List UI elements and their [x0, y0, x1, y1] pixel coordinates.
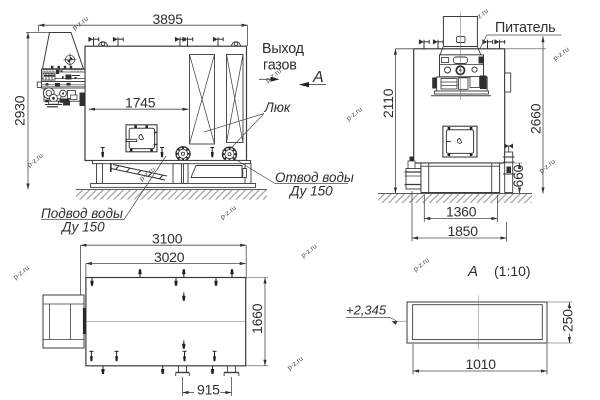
svg-text:2660: 2660 [528, 103, 544, 134]
svg-text:Ду 150: Ду 150 [288, 184, 333, 199]
svg-text:Питатель: Питатель [495, 20, 555, 36]
svg-text:3020: 3020 [154, 249, 185, 265]
svg-text:Выход: Выход [262, 41, 305, 57]
svg-text:1850: 1850 [448, 223, 479, 239]
svg-text:+2,345: +2,345 [346, 303, 387, 318]
svg-text:1360: 1360 [446, 204, 477, 220]
svg-text:1660: 1660 [249, 303, 265, 334]
svg-text:3895: 3895 [153, 11, 184, 27]
svg-text:А: А [467, 263, 478, 280]
svg-text:2930: 2930 [12, 95, 28, 126]
svg-text:915: 915 [197, 381, 220, 397]
svg-text:250: 250 [560, 309, 576, 332]
svg-text:1745: 1745 [125, 95, 156, 111]
svg-text:2110: 2110 [380, 88, 396, 118]
svg-text:Ду 150: Ду 150 [60, 220, 105, 235]
svg-text:газов: газов [263, 58, 297, 74]
svg-text:3100: 3100 [152, 230, 183, 246]
svg-text:1010: 1010 [466, 356, 497, 372]
svg-text:660: 660 [510, 164, 526, 187]
svg-text:(1:10): (1:10) [494, 263, 531, 279]
svg-text:А: А [312, 69, 324, 86]
svg-text:Люк: Люк [264, 100, 291, 115]
